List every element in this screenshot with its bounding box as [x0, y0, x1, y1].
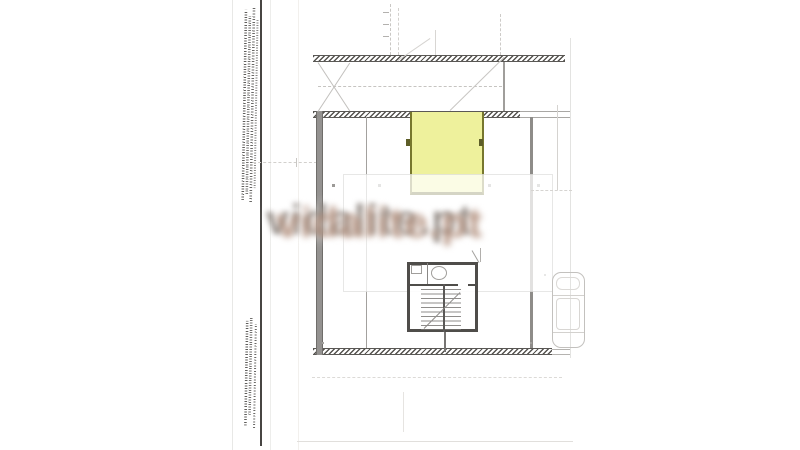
ramp-diagonal-right: [450, 57, 505, 111]
column-marker: [332, 184, 335, 187]
dimension-tick-2: [383, 24, 389, 25]
reference-tick: [296, 158, 297, 167]
reference-line-left: [253, 162, 317, 163]
wall-left: [316, 111, 323, 355]
car-hood: [556, 277, 580, 290]
car-windshield-line: [553, 295, 584, 296]
wc-toilet-fixture: [431, 266, 447, 280]
wall-top: [313, 55, 565, 62]
grid-line-top-d: [435, 30, 436, 55]
stall-boundary-faint: [557, 105, 558, 190]
page-fold-line-2: [298, 0, 299, 450]
core-door-jamb: [480, 248, 481, 262]
registry-stamp-top: [241, 8, 260, 206]
car-roof: [556, 298, 580, 330]
wall-bottom-thin-extension: [552, 349, 570, 355]
wc-sink-fixture: [411, 265, 422, 274]
column-marker: [322, 342, 324, 344]
grid-line-top-a: [390, 4, 391, 55]
wall-below-core: [444, 332, 446, 352]
registry-stamp-bottom: [244, 318, 260, 428]
dimension-tick-3: [383, 36, 389, 37]
door-stop-left: [406, 139, 410, 146]
page-edge-line-left: [232, 0, 233, 450]
scanned-floorplan-page: vidalite.pt vidalite.pt: [0, 0, 800, 450]
stall-boundary-dashes: [531, 190, 572, 191]
column-marker: [530, 342, 532, 344]
stair-core-inner-wall-b: [468, 284, 478, 286]
reference-tick-below: [403, 392, 404, 432]
car-rear-line: [553, 332, 584, 333]
door-stop-right: [479, 139, 483, 146]
reference-line-below: [312, 377, 562, 378]
page-border-line: [260, 0, 262, 446]
dimension-tick-1: [383, 12, 389, 13]
wc-partition: [427, 263, 428, 284]
grid-line-top-c: [500, 14, 501, 55]
wall-stub-upper: [503, 62, 505, 111]
wall-middle-thin-extension: [520, 111, 570, 118]
grid-line-top-b: [398, 8, 399, 55]
wall-bottom: [313, 348, 552, 355]
page-fold-line: [270, 0, 271, 450]
stair-core-inner-wall-a: [407, 284, 458, 286]
page-bottom-faint-line: [297, 441, 573, 442]
